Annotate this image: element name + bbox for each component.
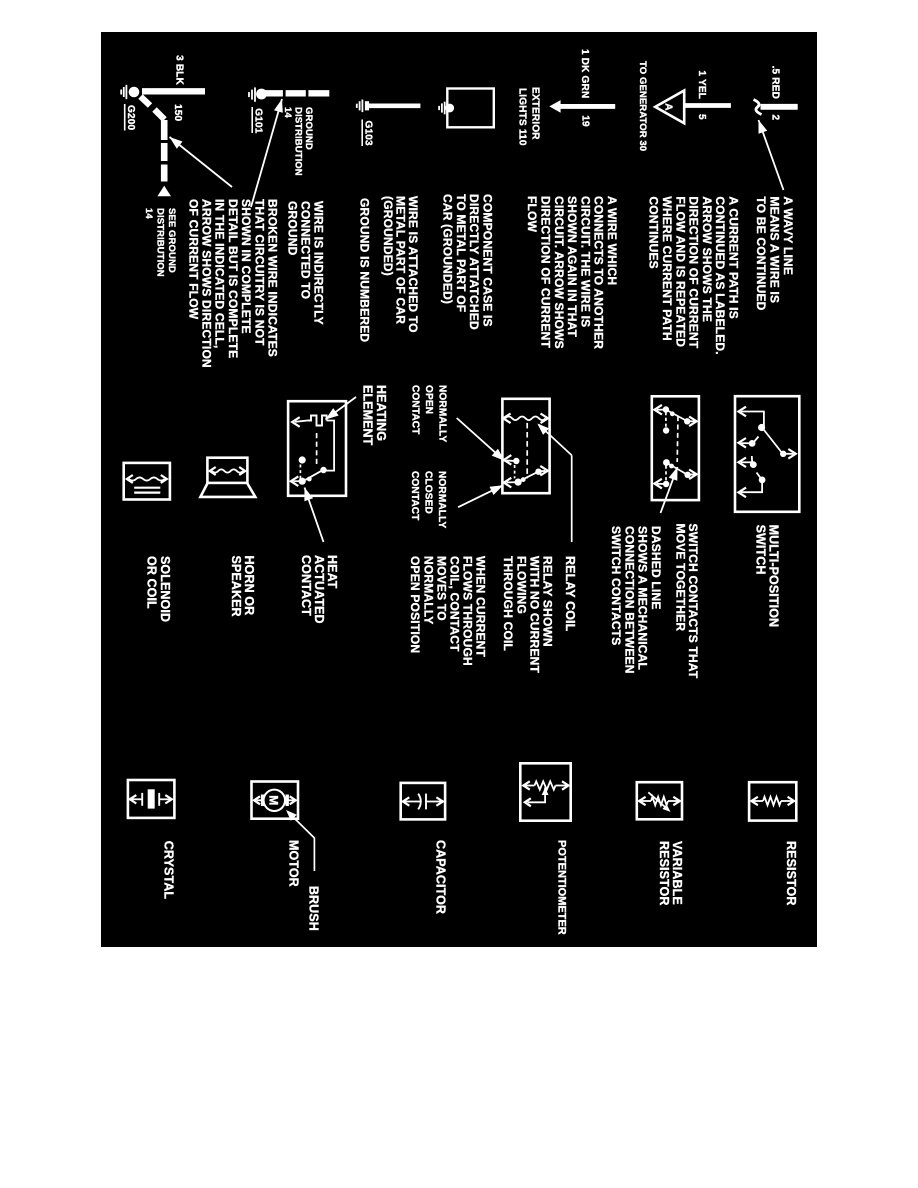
- svg-text:OR COIL: OR COIL: [145, 556, 159, 609]
- svg-text:HORN OR: HORN OR: [242, 556, 256, 616]
- svg-text:G200: G200: [125, 105, 136, 131]
- svg-text:CAR (GROUNDED): CAR (GROUNDED): [441, 194, 455, 304]
- svg-text:VARIABLE: VARIABLE: [670, 841, 684, 905]
- svg-text:CIRCUIT. THE WIRE IS: CIRCUIT. THE WIRE IS: [578, 196, 592, 327]
- svg-text:1 DK GRN: 1 DK GRN: [579, 49, 590, 98]
- svg-text:SWITCH: SWITCH: [753, 525, 767, 575]
- svg-text:MULTI-POSITION: MULTI-POSITION: [767, 525, 781, 628]
- svg-text:CAPACITOR: CAPACITOR: [434, 840, 448, 914]
- svg-text:THAT CIRCUITRY IS NOT: THAT CIRCUITRY IS NOT: [252, 199, 266, 346]
- svg-text:(GROUNDED): (GROUNDED): [381, 196, 395, 276]
- svg-text:DETAIL BUT IS COMPLETE: DETAIL BUT IS COMPLETE: [226, 199, 240, 358]
- svg-text:COIL, CONTACT: COIL, CONTACT: [448, 556, 462, 652]
- svg-text:ACTUATED: ACTUATED: [312, 555, 326, 624]
- svg-text:CONTACT: CONTACT: [299, 555, 313, 616]
- svg-text:RESISTOR: RESISTOR: [784, 841, 798, 905]
- svg-text:OPEN POSITION: OPEN POSITION: [408, 556, 422, 653]
- svg-text:A CURRENT PATH IS: A CURRENT PATH IS: [727, 196, 741, 319]
- svg-text:IN THE INDICATED CELL,: IN THE INDICATED CELL,: [213, 199, 227, 349]
- svg-text:SHOWN IN COMPLETE: SHOWN IN COMPLETE: [239, 199, 253, 334]
- svg-text:NORMALLY: NORMALLY: [436, 471, 447, 528]
- svg-text:14: 14: [143, 208, 154, 219]
- svg-text:LIGHTS 110: LIGHTS 110: [516, 88, 527, 146]
- svg-text:MOVE TOGETHER: MOVE TOGETHER: [674, 524, 688, 632]
- svg-text:CONTINUED AS LABELED.: CONTINUED AS LABELED.: [713, 196, 727, 354]
- svg-text:BRUSH: BRUSH: [306, 886, 320, 931]
- svg-text:CRYSTAL: CRYSTAL: [162, 841, 176, 900]
- svg-text:CONTINUES: CONTINUES: [647, 196, 661, 268]
- svg-text:TO GENERATOR 30: TO GENERATOR 30: [637, 61, 648, 151]
- svg-text:CIRCUIT. ARROW SHOWS: CIRCUIT. ARROW SHOWS: [552, 196, 566, 349]
- svg-text:CONNECTED TO: CONNECTED TO: [299, 201, 313, 299]
- svg-text:SOLENOID: SOLENOID: [158, 556, 172, 622]
- svg-text:DIRECTION OF CURRENT: DIRECTION OF CURRENT: [539, 196, 553, 348]
- svg-text:19: 19: [580, 115, 591, 127]
- svg-text:FLOWING: FLOWING: [514, 556, 528, 614]
- svg-text:SPEAKER: SPEAKER: [229, 556, 243, 617]
- svg-text:OF CURRENT FLOW: OF CURRENT FLOW: [186, 199, 200, 320]
- svg-text:150: 150: [172, 104, 183, 122]
- svg-text:5: 5: [696, 114, 707, 120]
- svg-text:RELAY COIL: RELAY COIL: [563, 556, 577, 632]
- svg-text:ARROW SHOWS DIRECTION: ARROW SHOWS DIRECTION: [200, 199, 214, 368]
- svg-text:THROUGH COIL: THROUGH COIL: [501, 556, 515, 651]
- svg-text:WHEN CURRENT: WHEN CURRENT: [474, 556, 488, 658]
- svg-text:RESISTOR: RESISTOR: [657, 841, 671, 905]
- svg-text:DIRECTLY ATTATCHED: DIRECTLY ATTATCHED: [467, 194, 481, 330]
- svg-text:CONNECTION BETWEEN: CONNECTION BETWEEN: [623, 526, 637, 674]
- svg-text:.5 RED: .5 RED: [770, 66, 781, 99]
- svg-text:DIRECTION OF CURRENT: DIRECTION OF CURRENT: [687, 196, 701, 348]
- svg-text:SWITCH CONTACTS: SWITCH CONTACTS: [609, 526, 623, 645]
- svg-text:COMPONENT CASE IS: COMPONENT CASE IS: [481, 194, 495, 327]
- svg-text:SHOWN AGAIN IN THAT: SHOWN AGAIN IN THAT: [565, 196, 579, 338]
- svg-text:FLOW: FLOW: [525, 196, 539, 233]
- svg-text:1 YEL: 1 YEL: [696, 70, 707, 99]
- svg-text:WITH NO CURRENT: WITH NO CURRENT: [527, 556, 541, 673]
- svg-text:MOTOR: MOTOR: [286, 840, 300, 887]
- svg-text:BROKEN WIRE INDICATES: BROKEN WIRE INDICATES: [266, 199, 280, 357]
- svg-text:WIRE IS INDIRECTLY: WIRE IS INDIRECTLY: [312, 201, 326, 325]
- svg-text:M: M: [267, 795, 281, 805]
- svg-text:POTENTIOMETER: POTENTIOMETER: [556, 840, 568, 935]
- svg-text:SEE GROUND: SEE GROUND: [166, 208, 177, 273]
- svg-text:SHOWS A MECHANICAL: SHOWS A MECHANICAL: [636, 526, 650, 670]
- svg-text:CONNECTS TO ANOTHER: CONNECTS TO ANOTHER: [592, 196, 606, 349]
- svg-text:EXTERIOR: EXTERIOR: [530, 87, 541, 140]
- svg-text:DASHED LINE: DASHED LINE: [649, 526, 663, 610]
- svg-text:WHERE CURRENT PATH: WHERE CURRENT PATH: [660, 196, 674, 340]
- svg-text:RELAY SHOWN: RELAY SHOWN: [541, 556, 555, 647]
- svg-text:DISTRIBUTION: DISTRIBUTION: [292, 107, 303, 176]
- svg-text:GROUND: GROUND: [303, 107, 314, 150]
- svg-text:HEAT: HEAT: [325, 555, 339, 589]
- svg-text:MEANS A WIRE IS: MEANS A WIRE IS: [768, 196, 782, 303]
- svg-text:G101: G101: [253, 108, 264, 134]
- svg-text:A WAVY LINE: A WAVY LINE: [781, 196, 795, 275]
- svg-text:NORMALLY: NORMALLY: [437, 385, 448, 442]
- svg-text:CLOSED: CLOSED: [423, 471, 434, 514]
- svg-text:DISTRIBUTION: DISTRIBUTION: [155, 208, 166, 277]
- svg-text:G103: G103: [363, 121, 374, 147]
- svg-text:TO METAL PART OF: TO METAL PART OF: [454, 194, 468, 312]
- svg-text:MOVES TO: MOVES TO: [434, 556, 448, 621]
- svg-text:ARROW SHOWS THE: ARROW SHOWS THE: [700, 196, 714, 322]
- svg-text:OPEN: OPEN: [423, 385, 434, 414]
- svg-text:TO BE CONTINUED: TO BE CONTINUED: [754, 196, 768, 310]
- svg-text:FLOWS THROUGH: FLOWS THROUGH: [461, 556, 475, 666]
- svg-text:CONTACT: CONTACT: [410, 385, 421, 435]
- svg-text:CONTACT: CONTACT: [409, 471, 420, 521]
- svg-text:2: 2: [770, 115, 781, 121]
- svg-text:GROUND: GROUND: [286, 201, 300, 256]
- svg-text:GROUND IS NUMBERED: GROUND IS NUMBERED: [358, 198, 372, 342]
- svg-text:14: 14: [282, 107, 293, 118]
- svg-text:A WIRE WHICH: A WIRE WHICH: [605, 196, 619, 285]
- svg-text:NORMALLY: NORMALLY: [421, 556, 435, 625]
- svg-text:3 BLK: 3 BLK: [174, 55, 185, 85]
- svg-text:HEATING: HEATING: [374, 385, 388, 441]
- svg-text:FLOW AND IS REPEATED: FLOW AND IS REPEATED: [673, 196, 687, 347]
- svg-text:A: A: [663, 103, 674, 110]
- svg-text:ELEMENT: ELEMENT: [361, 385, 375, 446]
